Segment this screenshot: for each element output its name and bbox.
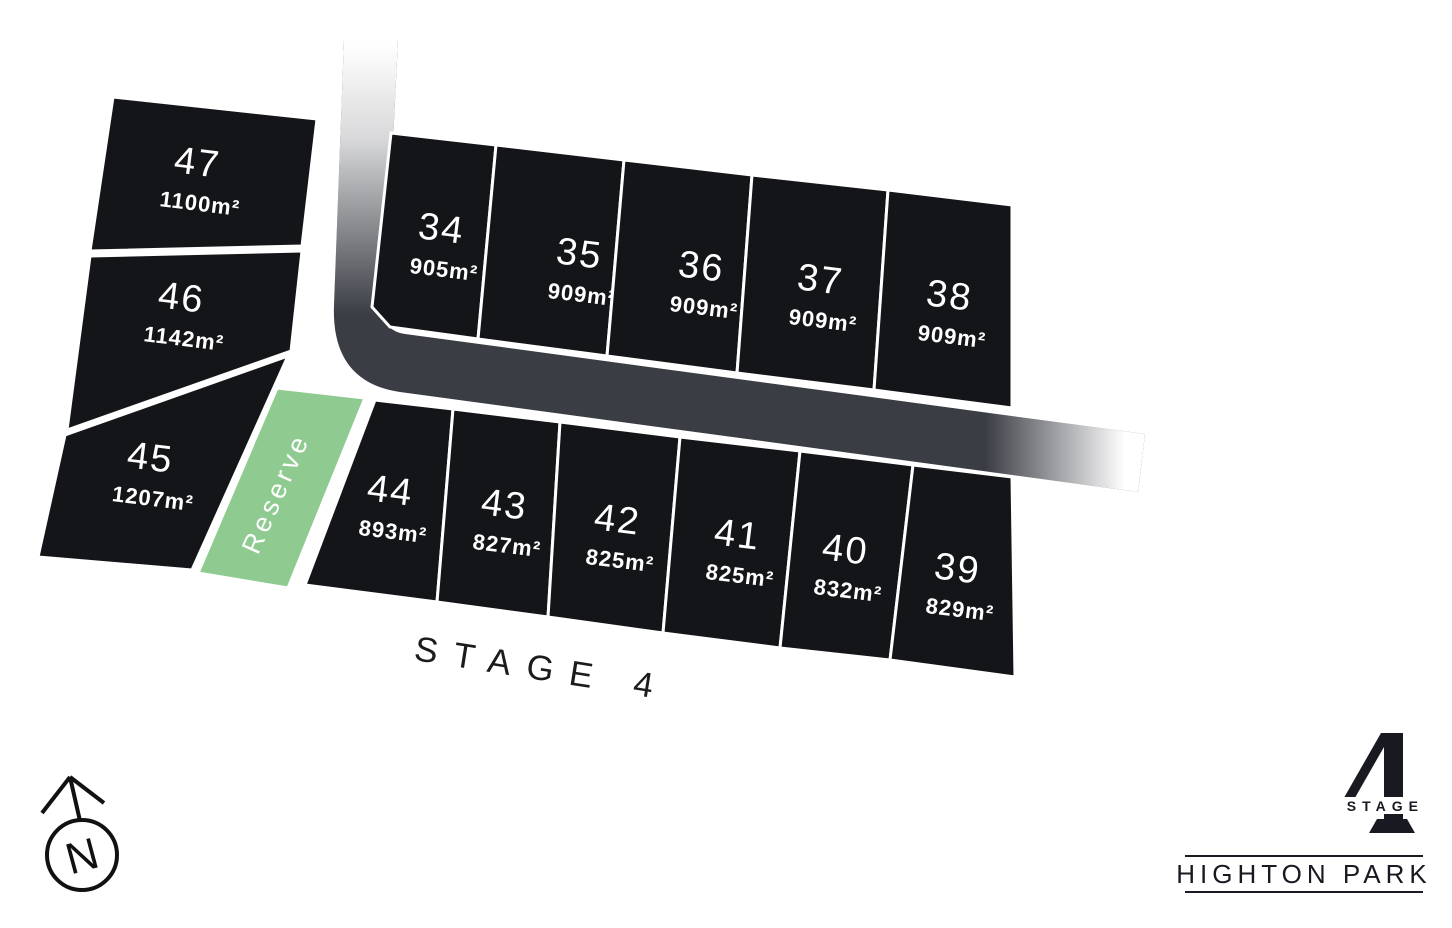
lot-36-number: 36	[676, 243, 727, 290]
lot-35-number: 35	[554, 230, 605, 277]
lot-35: 35 909m²	[478, 145, 624, 356]
lot-44-number: 44	[365, 467, 416, 514]
lot-47-number: 47	[172, 139, 223, 186]
lot-46-number: 46	[156, 274, 207, 321]
brand-logo: STAGE HIGHTON PARK	[1176, 733, 1432, 892]
lot-39-number: 39	[932, 545, 983, 592]
brand-name: HIGHTON PARK	[1176, 859, 1432, 889]
lot-38: 38 909m²	[874, 190, 1012, 408]
logo-4-foot	[1369, 819, 1415, 833]
logo-stage-word: STAGE	[1347, 798, 1424, 814]
lot-38-number: 38	[924, 272, 975, 319]
lot-42: 42 825m²	[548, 422, 680, 633]
lot-40-number: 40	[820, 526, 871, 573]
lot-41: 41 825m²	[663, 437, 800, 648]
lot-43-number: 43	[479, 481, 530, 528]
stage-4-masterplan: 47 1100m² 46 1142m² 45 1207m² 34 905m² 3…	[0, 0, 1452, 928]
lot-34: 34 905m²	[372, 133, 496, 339]
north-compass: N	[42, 777, 117, 890]
north-arrow-wing-left	[42, 777, 70, 813]
lot-37: 37 909m²	[737, 175, 888, 390]
stage-title: STAGE 4	[412, 629, 672, 708]
lot-45-number: 45	[125, 434, 176, 481]
logo-numeral-4	[1341, 733, 1415, 833]
lot-39: 39 829m²	[890, 465, 1015, 677]
lot-36: 36 909m²	[607, 160, 752, 373]
site-plan-svg: 47 1100m² 46 1142m² 45 1207m² 34 905m² 3…	[0, 0, 1452, 928]
lot-43: 43 827m²	[437, 409, 560, 617]
lot-42-number: 42	[592, 496, 643, 543]
lot-37-number: 37	[795, 256, 846, 303]
lot-34-number: 34	[416, 205, 467, 252]
lot-47: 47 1100m²	[90, 97, 317, 251]
lot-41-number: 41	[712, 511, 763, 558]
